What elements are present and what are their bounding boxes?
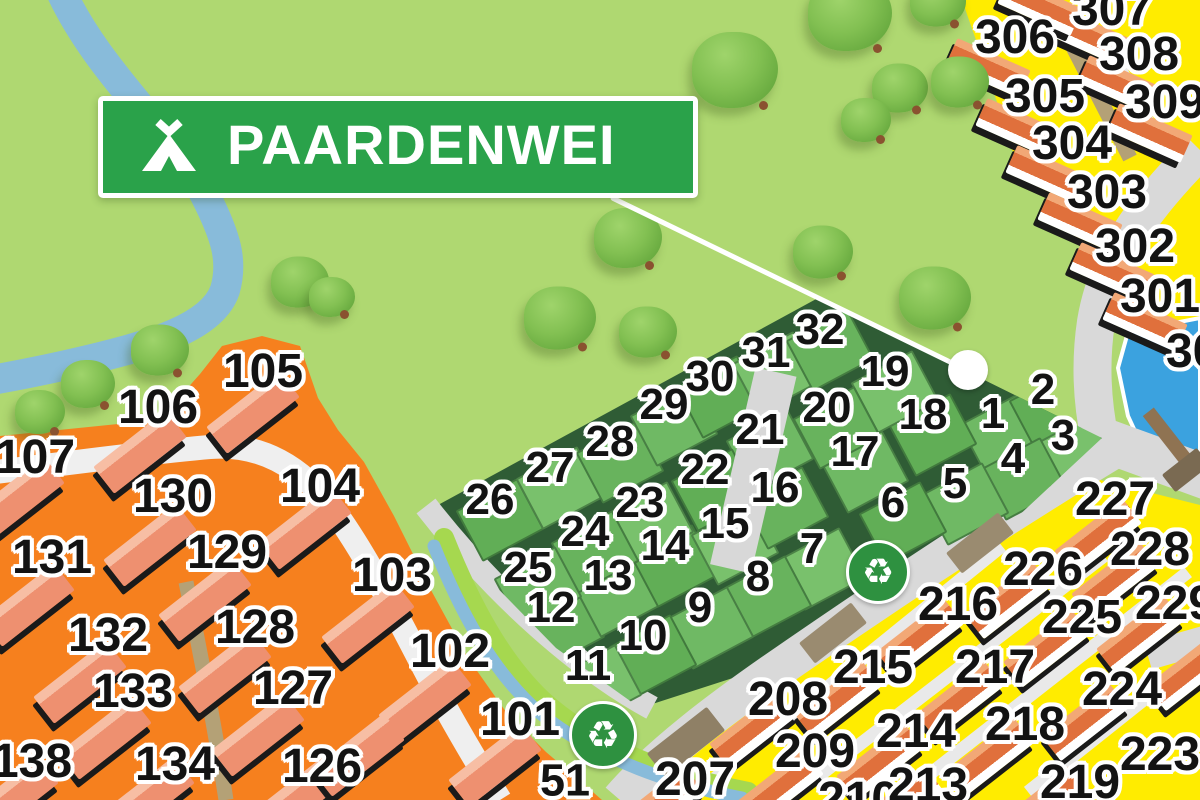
plot-number-225: 225 [1042,594,1122,642]
plot-number-29: 29 [640,383,689,427]
tree-icon [841,98,891,142]
plot-number-11: 11 [565,644,612,688]
plot-number-17: 17 [831,430,880,474]
plot-number-19: 19 [861,350,910,394]
plot-number-25: 25 [504,546,553,590]
plot-number-219: 219 [1040,759,1120,800]
plot-number-213: 213 [888,762,968,800]
plot-number-106: 106 [118,384,198,432]
plot-number-208: 208 [748,676,828,724]
tent-icon [137,118,201,176]
plot-number-126: 126 [282,743,362,791]
plot-number-24: 24 [561,510,610,554]
tree-icon [309,277,355,317]
plot-number-207: 207 [655,756,735,800]
plot-number-103: 103 [352,552,432,600]
plot-number-101: 101 [480,696,560,744]
plot-number-3: 3 [1051,414,1075,458]
plot-number-9: 9 [688,586,712,630]
plot-number-301: 301 [1120,273,1200,321]
plot-number-302: 302 [1095,223,1175,271]
plot-number-210: 210 [818,776,898,800]
plot-number-218: 218 [985,701,1065,749]
plot-number-229: 229 [1135,580,1200,628]
plot-number-1: 1 [981,392,1005,436]
plot-number-15: 15 [701,502,750,546]
plot-number-13: 13 [584,554,633,598]
plot-number-223: 223 [1120,731,1200,779]
plot-number-216: 216 [918,581,998,629]
plot-number-129: 129 [187,529,267,577]
paardenwei-banner: PAARDENWEI [98,96,698,198]
plot-number-107: 107 [0,434,75,482]
tree-icon [15,390,65,434]
plot-number-12: 12 [527,586,576,630]
plot-number-128: 128 [215,604,295,652]
plot-number-105: 105 [223,348,303,396]
plot-number-217: 217 [955,644,1035,692]
banner-title: PAARDENWEI [227,117,616,177]
plot-number-18: 18 [899,393,948,437]
plot-number-30: 30 [686,355,735,399]
plot-number-32: 32 [796,308,845,352]
recycling-icon: ♻ [846,540,910,604]
plot-number-133: 133 [93,668,173,716]
plot-number-306: 306 [975,14,1055,62]
plot-number-8: 8 [746,555,770,599]
plot-number-21: 21 [736,408,785,452]
plot-number-228: 228 [1110,526,1190,574]
plot-number-27: 27 [526,446,575,490]
plot-number-209: 209 [775,728,855,776]
plot-number-16: 16 [751,466,800,510]
plot-number-26: 26 [466,478,515,522]
park-map: ♻♻ PAARDENWEI 12345678910111213141516171… [0,0,1200,800]
plot-number-131: 131 [12,534,92,582]
plot-number-104: 104 [280,463,360,511]
plot-number-2: 2 [1031,368,1055,412]
plot-number-10: 10 [619,614,668,658]
plot-number-22: 22 [681,448,730,492]
plot-number-5: 5 [943,462,967,506]
plot-number-132: 132 [68,612,148,660]
plot-number-304: 304 [1032,120,1112,168]
plot-number-127: 127 [253,665,333,713]
plot-number-14: 14 [641,524,690,568]
plot-number-305: 305 [1005,73,1085,121]
plot-number-102: 102 [410,628,490,676]
plot-number-134: 134 [135,741,215,789]
location-marker [948,350,988,390]
plot-number-7: 7 [800,527,824,571]
plot-number-224: 224 [1082,666,1162,714]
plot-number-303: 303 [1067,169,1147,217]
plot-number-214: 214 [876,708,956,756]
plot-number-308: 308 [1099,31,1179,79]
plot-number-227: 227 [1075,476,1155,524]
tree-icon [61,360,115,408]
plot-number-51: 51 [540,758,590,800]
plot-number-138: 138 [0,738,72,786]
plot-number-31: 31 [742,331,791,375]
plot-number-226: 226 [1003,546,1083,594]
plot-number-20: 20 [803,386,852,430]
plot-number-130: 130 [133,473,213,521]
plot-number-309: 309 [1125,79,1200,127]
plot-number-6: 6 [881,481,905,525]
plot-number-28: 28 [586,420,635,464]
plot-number-300: 300 [1166,328,1200,376]
plot-number-215: 215 [833,644,913,692]
plot-number-4: 4 [1001,437,1025,481]
plot-number-23: 23 [616,481,665,525]
